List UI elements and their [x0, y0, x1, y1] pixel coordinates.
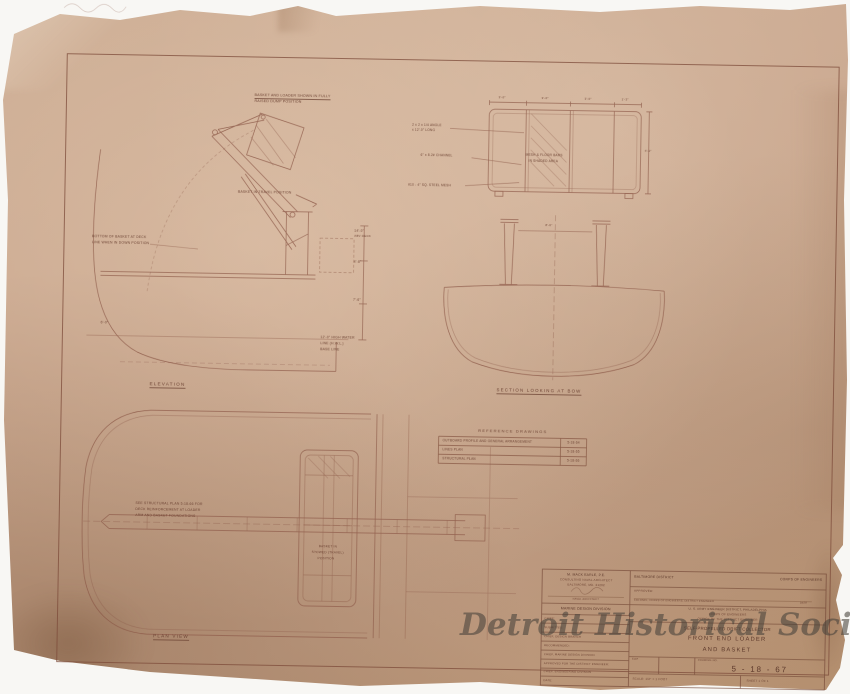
linework — [0, 0, 850, 694]
basket-callout-mesh: #10 - 4" SQ. STEEL MESH — [408, 184, 451, 188]
reference-row-number: 5-18-64 — [567, 441, 579, 445]
sheet-label: SHEET 1 OF 1 — [746, 680, 768, 684]
architect-role-caption: NAVAL ARCHITECT — [573, 599, 600, 602]
basket-callout-channel: 6" x 8.2# CHANNEL — [421, 154, 453, 158]
approval-row-label: RECOMMENDED: — [544, 644, 570, 648]
signature-date-label: DATE — [800, 603, 808, 606]
approval-row-label: DATE: — [543, 679, 552, 682]
plan-label: PLAN VIEW — [153, 633, 189, 640]
elevation-highwater-line3: BASE LINE — [320, 348, 339, 352]
elevation-note-top-line2: RAISED DUMP POSITION — [254, 99, 301, 104]
plan-basket-note-line2: STOWED (TRAVEL) — [312, 551, 344, 555]
elevation-dim-2: 4'-6" — [354, 261, 362, 265]
drawing-title-line2: AND BASKET — [703, 647, 752, 655]
reference-row-number: 5-18-66 — [567, 459, 579, 463]
basket-callout-angle-line2: x 12'-0" LONG — [412, 129, 435, 133]
basket-inside-note-line1: MESH & FLOOR BARS — [526, 154, 563, 158]
plan-basket-note-line1: BASKET IN — [319, 545, 337, 549]
scanned-drawing-canvas: BASKET AND LOADER SHOWN IN FULLY RAISED … — [0, 0, 850, 694]
basket-dim-top-1: 3'-0" — [499, 96, 506, 100]
basket-dim-top-4: 1'-3" — [622, 98, 629, 102]
elevation-dim-3: 7'-6" — [353, 299, 361, 303]
reference-row-name: LINES PLAN — [442, 448, 462, 452]
district-label: BALTIMORE DISTRICT — [634, 576, 674, 581]
elevation-dim-1b: ABV DECK — [354, 235, 371, 239]
elevation-highwater-line2: LINE (H.W.L.) — [320, 342, 344, 346]
drawing-no-label: DRAWING NO. — [698, 660, 718, 663]
scale-label: SCALE: 1/2" = 1 FOOT — [632, 678, 667, 682]
drawing-content: BASKET AND LOADER SHOWN IN FULLY RAISED … — [0, 0, 850, 694]
border — [57, 54, 839, 675]
watermark-text: Detroit Historical Society — [460, 607, 840, 643]
plan-basket-note-line3: POSITION — [317, 557, 334, 561]
elevation-dim-4: 6'-0" — [101, 321, 109, 325]
plan-linework — [80, 409, 521, 641]
basket-dim-top-3: 3'-0" — [585, 98, 592, 102]
architect-address: BALTIMORE, MD. 21202 — [567, 584, 605, 588]
reference-row-number: 5-18-65 — [567, 450, 579, 454]
corps-label: CORPS OF ENGINEERS — [780, 578, 822, 583]
approved-label: APPROVED: — [634, 590, 653, 594]
elevation-highwater-line1: 12'-0" HIGH WATER — [320, 336, 354, 341]
basket-dim-top-2: 3'-0" — [542, 97, 549, 101]
reference-row-name: STRUCTURAL PLAN — [442, 457, 476, 461]
size-label: SIZE — [632, 659, 639, 662]
elevation-label: ELEVATION — [149, 381, 185, 388]
section-linework — [442, 213, 665, 382]
drawing-number: 5 - 18 - 67 — [731, 664, 787, 674]
basket-inside-note-line2: IN SHADED AREA — [528, 160, 558, 164]
basket-detail-linework — [449, 99, 653, 199]
section-dim-1: 8'-6" — [545, 224, 552, 228]
basket-dim-right: 4'-2" — [645, 150, 652, 154]
